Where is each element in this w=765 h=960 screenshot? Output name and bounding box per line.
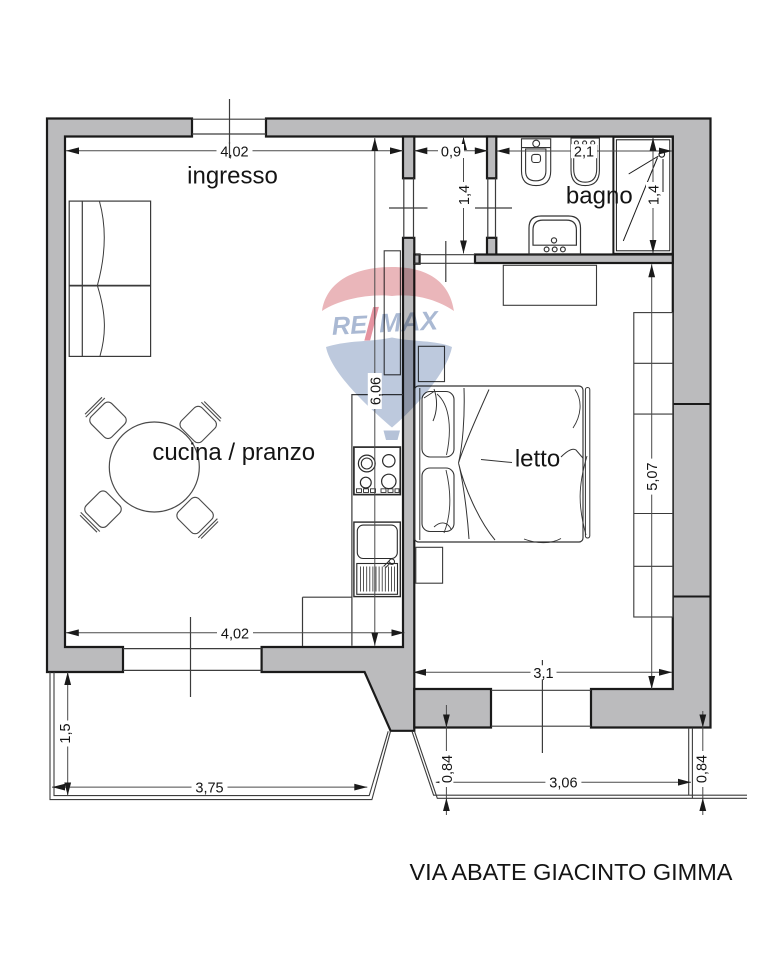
svg-text:letto: letto	[515, 446, 560, 473]
svg-text:3,75: 3,75	[195, 781, 223, 797]
svg-text:VIA ABATE GIACINTO GIMMA: VIA ABATE GIACINTO GIMMA	[410, 859, 733, 885]
svg-text:bagno: bagno	[566, 183, 633, 210]
svg-text:3,1: 3,1	[533, 666, 553, 682]
svg-text:5,07: 5,07	[645, 462, 661, 490]
svg-text:1,5: 1,5	[58, 723, 74, 743]
svg-text:4,02: 4,02	[220, 144, 248, 160]
svg-text:3,06: 3,06	[549, 776, 577, 792]
svg-text:6,06: 6,06	[368, 377, 384, 405]
svg-text:2,1: 2,1	[574, 145, 594, 161]
svg-text:0,84: 0,84	[694, 755, 710, 783]
svg-text:ingresso: ingresso	[187, 163, 278, 190]
svg-text:4,02: 4,02	[221, 626, 249, 642]
svg-text:RE: RE	[331, 311, 369, 341]
svg-text:cucina / pranzo: cucina / pranzo	[152, 439, 315, 466]
svg-text:MAX: MAX	[378, 305, 440, 338]
svg-text:0,9: 0,9	[441, 144, 461, 160]
svg-text:1,4: 1,4	[647, 185, 663, 205]
svg-text:0,84: 0,84	[440, 755, 456, 783]
svg-text:1,4: 1,4	[457, 185, 473, 205]
